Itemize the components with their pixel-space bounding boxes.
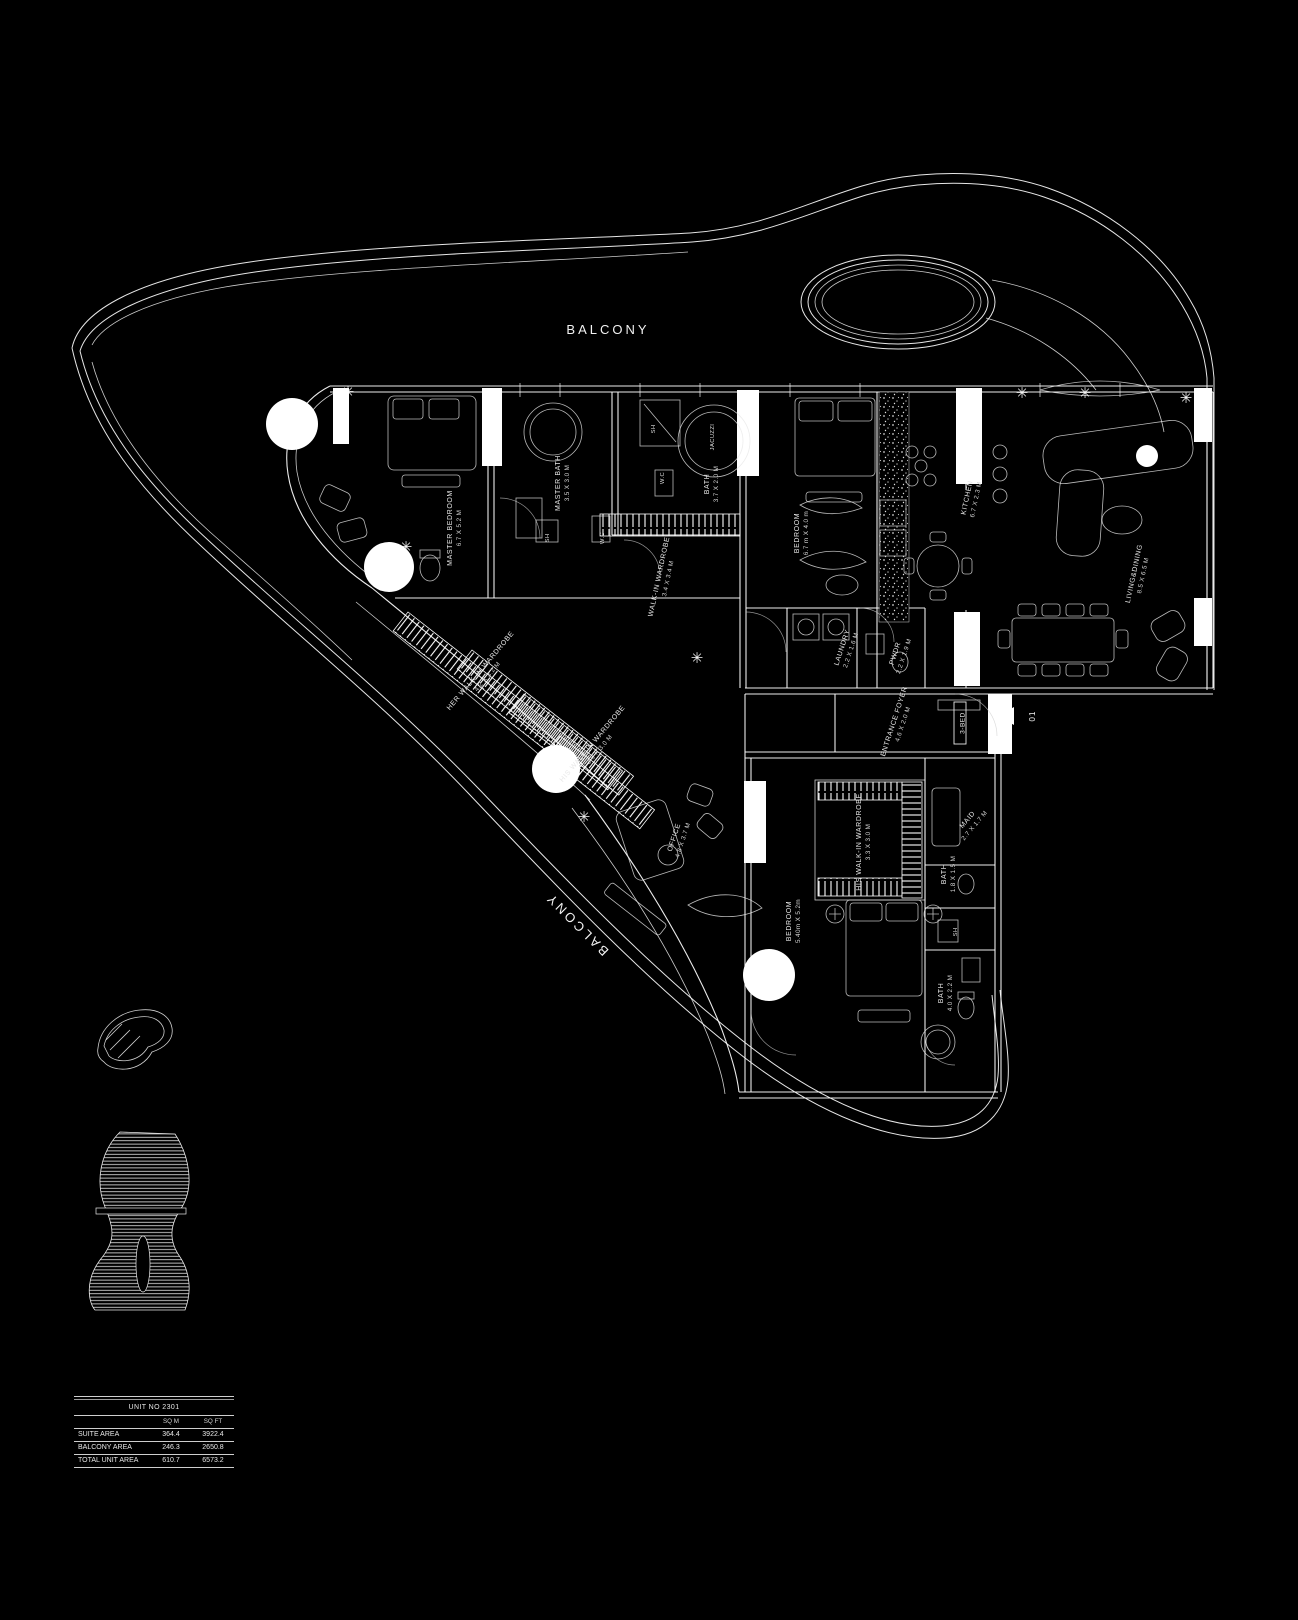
svg-text:W.C: W.C [660, 472, 666, 484]
wall-piers [333, 388, 1212, 863]
label-pwdr: PWDR2.2 X 1.9 M [887, 635, 914, 675]
label-walkin-wardrobe: WALK-IN WARDROBE3.4 X 3.4 M [648, 536, 681, 619]
label-office: OFFICE4.8 X 3.7 M [666, 819, 693, 859]
col-sqft: SQ FT [192, 1416, 234, 1428]
label-sh-2: SH [651, 425, 657, 434]
row-label: BALCONY AREA [74, 1442, 150, 1454]
svg-text:3.5 X 3.0 M: 3.5 X 3.0 M [564, 465, 571, 502]
svg-text:6.7 m X 4.0 m: 6.7 m X 4.0 m [803, 511, 810, 555]
row-sqm: 364.4 [150, 1429, 192, 1441]
floor-plan-page: ✳ ✳ ✳ ✳ ✳ ✳ ✳ MASTER BEDROOM6.7 X 5.2 M … [0, 0, 1298, 1620]
plant-icon: ✳ [1079, 385, 1092, 402]
area-table: UNIT NO 2301 SQ M SQ FT SUITE AREA 364.4… [74, 1396, 234, 1468]
label-entrance-foyer: ENTRANCE FOYER4.6 X 2.0 M [880, 686, 918, 760]
wardrobe-hatch [600, 514, 740, 536]
row-sqft: 2650.8 [192, 1442, 234, 1454]
label-jacuzzi: JACUZZI [710, 424, 716, 451]
label-bath-jacuzzi: BATH3.7 X 2.0 M [704, 466, 720, 503]
table-row: TOTAL UNIT AREA 610.7 6573.2 [74, 1455, 234, 1468]
label-master-bedroom: MASTER BEDROOM6.7 X 5.2 M [447, 490, 463, 566]
balcony-outline [72, 174, 1214, 1139]
row-label: SUITE AREA [74, 1429, 150, 1441]
svg-text:HIS WALK-IN WARDROBE: HIS WALK-IN WARDROBE [856, 793, 863, 890]
key-plan-tower [89, 1132, 189, 1310]
label-his-wardrobe-wing: HIS WALK-IN WARDROBE3.3 X 3.0 M [856, 793, 872, 890]
label-wc-2: W.C [660, 472, 666, 484]
label-master-bath: MASTER BATH3.5 X 3.0 M [555, 455, 571, 511]
svg-text:MASTER BEDROOM: MASTER BEDROOM [447, 490, 454, 566]
svg-text:W.C: W.C [600, 532, 606, 544]
row-sqm: 246.3 [150, 1442, 192, 1454]
balcony-label-top: BALCONY [566, 322, 649, 337]
label-maid: MAID2.7 X 1.7 M [953, 804, 989, 842]
master-bed [388, 396, 476, 470]
row-sqft: 6573.2 [192, 1455, 234, 1467]
svg-text:1.8 X 1.5 M: 1.8 X 1.5 M [950, 856, 957, 893]
plant-icon: ✳ [691, 650, 704, 667]
label-wc-1: W.C [600, 532, 606, 544]
plants: ✳ ✳ ✳ ✳ ✳ ✳ ✳ [342, 384, 1193, 826]
balcony-label-side: BALCONY [542, 889, 611, 958]
label-sh-3: SH [953, 928, 959, 937]
label-bedroom3: BEDROOM5.40m X 5.2m [786, 899, 802, 943]
table-row: SUITE AREA 364.4 3922.4 [74, 1429, 234, 1442]
unit-type-badge: 3-BED [960, 712, 967, 734]
svg-text:JACUZZI: JACUZZI [710, 424, 716, 451]
svg-text:3.3 X 3.0 M: 3.3 X 3.0 M [865, 824, 872, 861]
plant-icon: ✳ [400, 539, 413, 556]
label-sh-1: SH [545, 534, 551, 543]
svg-text:5.40m X 5.2m: 5.40m X 5.2m [795, 899, 802, 943]
table-row: BALCONY AREA 246.3 2650.8 [74, 1442, 234, 1455]
label-bedroom2: BEDROOM6.7 m X 4.0 m [794, 511, 810, 555]
dining-table [1012, 618, 1114, 662]
svg-text:SH: SH [651, 425, 657, 434]
kitchen-floor-hatch [879, 392, 909, 622]
bedroom2-bed [795, 398, 875, 476]
master-tub [524, 403, 582, 461]
bedroom3-bed [846, 900, 922, 996]
svg-text:BEDROOM: BEDROOM [794, 513, 801, 553]
plant-icon: ✳ [1180, 390, 1193, 407]
svg-text:SH: SH [953, 928, 959, 937]
unit-number: 01 [1028, 711, 1037, 722]
row-sqft: 3922.4 [192, 1429, 234, 1441]
svg-text:BEDROOM: BEDROOM [786, 901, 793, 941]
label-kitchen: KITCHEN6.7 X 2.3 M [960, 479, 983, 518]
plant-icon: ✳ [1016, 385, 1029, 402]
svg-text:BATH: BATH [938, 983, 945, 1004]
table-header-row: SQ M SQ FT [74, 1416, 234, 1429]
table-top-rule [74, 1397, 234, 1400]
svg-text:4.0 X 2.2 M: 4.0 X 2.2 M [947, 975, 954, 1012]
structural-columns [266, 398, 1158, 1001]
svg-text:MASTER BATH: MASTER BATH [555, 455, 562, 511]
svg-text:6.7 X 5.2 M: 6.7 X 5.2 M [456, 510, 463, 547]
svg-text:BATH: BATH [941, 864, 948, 885]
breakfast-table [917, 545, 959, 587]
label-living-dining: LIVING&DINING8.5 X 6.5 M [1125, 544, 1153, 606]
key-plan-unit [98, 1010, 173, 1069]
plant-icon: ✳ [578, 809, 591, 826]
col-sqm: SQ M [150, 1416, 192, 1428]
floor-plan-drawing: ✳ ✳ ✳ ✳ ✳ ✳ ✳ MASTER BEDROOM6.7 X 5.2 M … [0, 0, 1298, 1620]
table-title: UNIT NO 2301 [74, 1401, 234, 1416]
svg-text:SH: SH [545, 534, 551, 543]
svg-text:BATH: BATH [704, 474, 711, 495]
balcony-blob [801, 255, 1164, 432]
row-sqm: 610.7 [150, 1455, 192, 1467]
plant-icon: ✳ [342, 384, 355, 401]
label-bath-wing: BATH4.0 X 2.2 M [938, 975, 954, 1012]
svg-text:3.7 X 2.0 M: 3.7 X 2.0 M [713, 466, 720, 503]
row-label: TOTAL UNIT AREA [74, 1455, 150, 1467]
label-bath-maid: BATH1.8 X 1.5 M [941, 856, 957, 893]
svg-text:BALCONY: BALCONY [542, 889, 611, 958]
